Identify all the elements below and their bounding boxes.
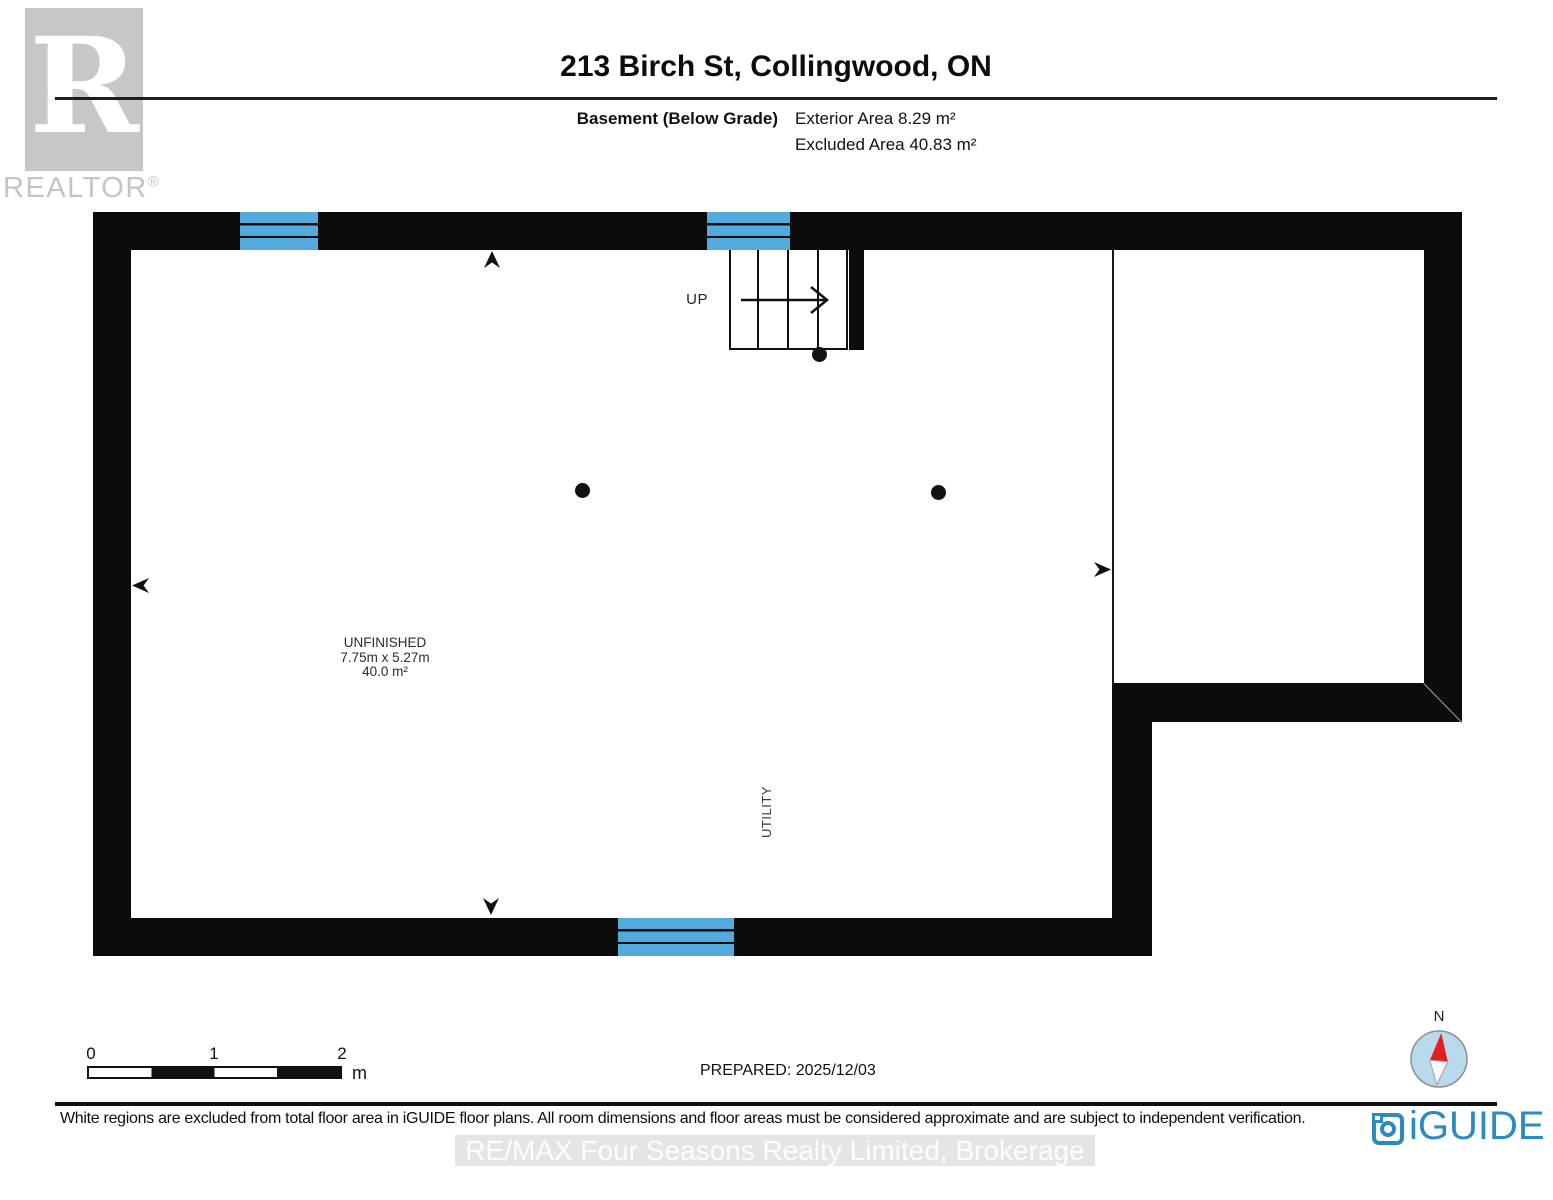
window-top-center bbox=[707, 212, 790, 250]
page-title: 213 Birch St, Collingwood, ON bbox=[426, 50, 1126, 84]
stairs-up-arrow-icon bbox=[737, 284, 837, 316]
iguide-logo-icon bbox=[1372, 1113, 1404, 1145]
excluded-area-value: Excluded Area 40.83 m² bbox=[795, 135, 976, 155]
stairs-side-wall bbox=[849, 250, 864, 350]
realtor-wordmark-text: REALTOR bbox=[3, 172, 148, 204]
registered-symbol: ® bbox=[148, 173, 161, 190]
room-label: UNFINISHED 7.75m x 5.27m 40.0 m² bbox=[285, 636, 485, 680]
wall-mid-vertical bbox=[1112, 683, 1152, 956]
scale-tick-2: 2 bbox=[332, 1044, 352, 1064]
disclaimer-text: White regions are excluded from total fl… bbox=[60, 1110, 1305, 1128]
camera-point bbox=[931, 485, 946, 500]
scale-unit-label: m bbox=[352, 1063, 367, 1084]
room-dimensions: 7.75m x 5.27m bbox=[285, 651, 485, 666]
dimension-arrow-down-icon bbox=[483, 898, 499, 915]
footer-divider bbox=[55, 1102, 1497, 1106]
stairs-up-label: UP bbox=[676, 291, 708, 308]
camera-point bbox=[575, 483, 590, 498]
compass-icon bbox=[1404, 1026, 1474, 1092]
wall-left bbox=[93, 212, 131, 956]
floor-plan-page: R REALTOR® 213 Birch St, Collingwood, ON… bbox=[0, 0, 1553, 1200]
iguide-icon-lens bbox=[1380, 1121, 1396, 1137]
camera-point bbox=[812, 347, 827, 362]
dimension-arrow-left-icon bbox=[132, 578, 149, 593]
room-area: 40.0 m² bbox=[285, 665, 485, 680]
window-bottom bbox=[618, 918, 734, 956]
scale-tick-0: 0 bbox=[81, 1044, 101, 1064]
dimension-arrow-right-icon bbox=[1094, 562, 1111, 577]
dimension-arrow-up-icon bbox=[484, 251, 500, 268]
brokerage-watermark: RE/MAX Four Seasons Realty Limited, Brok… bbox=[455, 1135, 1095, 1166]
iguide-icon-notch bbox=[1372, 1113, 1383, 1123]
realtor-logo-letter: R bbox=[25, 8, 143, 171]
utility-label: UTILITY bbox=[759, 781, 775, 843]
room-name: UNFINISHED bbox=[285, 636, 485, 651]
scale-bar bbox=[87, 1066, 342, 1079]
exterior-area-value: Exterior Area 8.29 m² bbox=[795, 109, 956, 129]
scale-tick-1: 1 bbox=[204, 1044, 224, 1064]
realtor-logo: R bbox=[25, 8, 143, 171]
floor-level-label: Basement (Below Grade) bbox=[528, 109, 778, 129]
iguide-brand-text: iGUIDE bbox=[1409, 1103, 1545, 1149]
wall-right-room-bottom bbox=[1112, 683, 1462, 722]
wall-right bbox=[1424, 212, 1462, 722]
title-divider bbox=[55, 97, 1497, 100]
window-top-left bbox=[240, 212, 318, 250]
prepared-date: PREPARED: 2025/12/03 bbox=[700, 1062, 876, 1080]
partition-line bbox=[1112, 250, 1114, 683]
compass-north-label: N bbox=[1404, 1008, 1474, 1025]
realtor-wordmark: REALTOR® bbox=[3, 172, 160, 205]
